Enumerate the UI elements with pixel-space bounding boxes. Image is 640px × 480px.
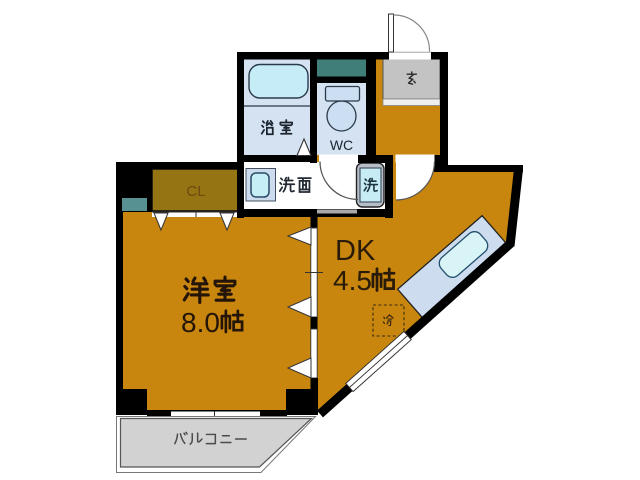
svg-text:4.5: 4.5 xyxy=(333,265,372,296)
svg-text:8.0: 8.0 xyxy=(181,307,220,338)
svg-text:WC: WC xyxy=(330,137,353,153)
svg-text:DK: DK xyxy=(335,235,376,267)
svg-text:CL: CL xyxy=(186,183,205,200)
